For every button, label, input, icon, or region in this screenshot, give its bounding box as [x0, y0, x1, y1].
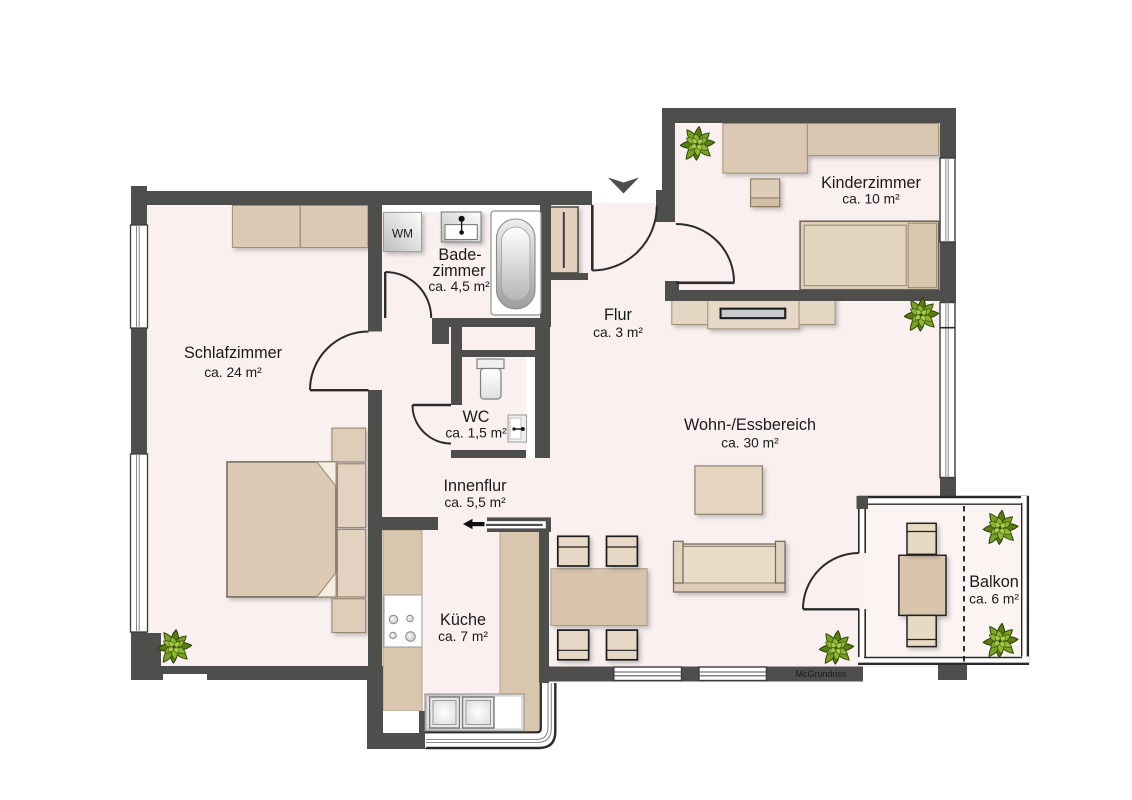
svg-text:Küche: Küche — [440, 611, 486, 629]
svg-text:ca. 7 m²: ca. 7 m² — [438, 629, 488, 644]
svg-text:WC: WC — [463, 408, 490, 426]
svg-text:ca. 3 m²: ca. 3 m² — [593, 325, 643, 340]
svg-text:Flur: Flur — [604, 306, 632, 324]
svg-text:Balkon: Balkon — [969, 573, 1019, 591]
svg-text:Schlafzimmer: Schlafzimmer — [184, 344, 283, 362]
svg-text:Kinderzimmer: Kinderzimmer — [821, 174, 921, 192]
svg-text:ca. 1,5 m²: ca. 1,5 m² — [445, 426, 507, 441]
svg-text:Wohn-/Essbereich: Wohn-/Essbereich — [684, 416, 816, 434]
svg-text:zimmer: zimmer — [432, 262, 486, 280]
svg-text:ca. 5,5 m²: ca. 5,5 m² — [444, 495, 506, 510]
svg-text:ca. 30 m²: ca. 30 m² — [721, 436, 779, 451]
svg-text:Innenflur: Innenflur — [444, 477, 508, 495]
svg-text:WM: WM — [392, 226, 413, 240]
svg-text:ca. 10 m²: ca. 10 m² — [842, 192, 900, 207]
svg-text:ca. 24 m²: ca. 24 m² — [204, 365, 262, 380]
svg-text:McGrundriss: McGrundriss — [795, 669, 847, 679]
svg-text:ca. 4,5 m²: ca. 4,5 m² — [428, 279, 490, 294]
svg-text:ca. 6 m²: ca. 6 m² — [969, 592, 1019, 607]
